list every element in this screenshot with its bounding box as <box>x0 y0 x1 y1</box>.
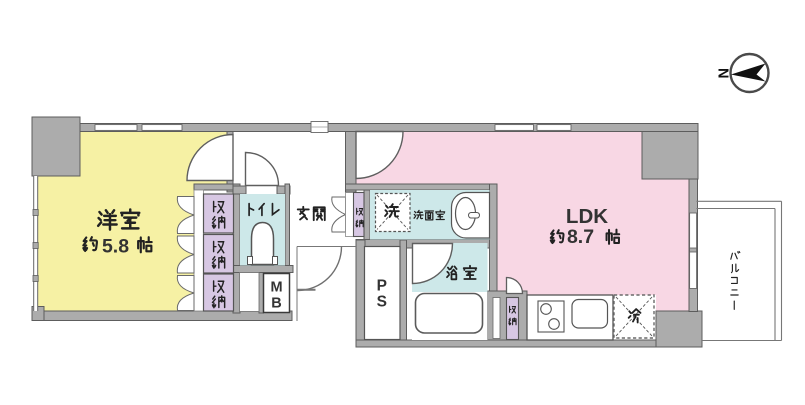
svg-text:M: M <box>270 280 282 296</box>
svg-text:B: B <box>271 296 281 312</box>
svg-text:P: P <box>377 278 387 295</box>
svg-text:LDK: LDK <box>566 205 608 228</box>
svg-text:S: S <box>377 293 387 310</box>
svg-text:8.7: 8.7 <box>567 226 594 248</box>
svg-text:N: N <box>715 68 731 78</box>
svg-text:5.8: 5.8 <box>102 236 129 258</box>
